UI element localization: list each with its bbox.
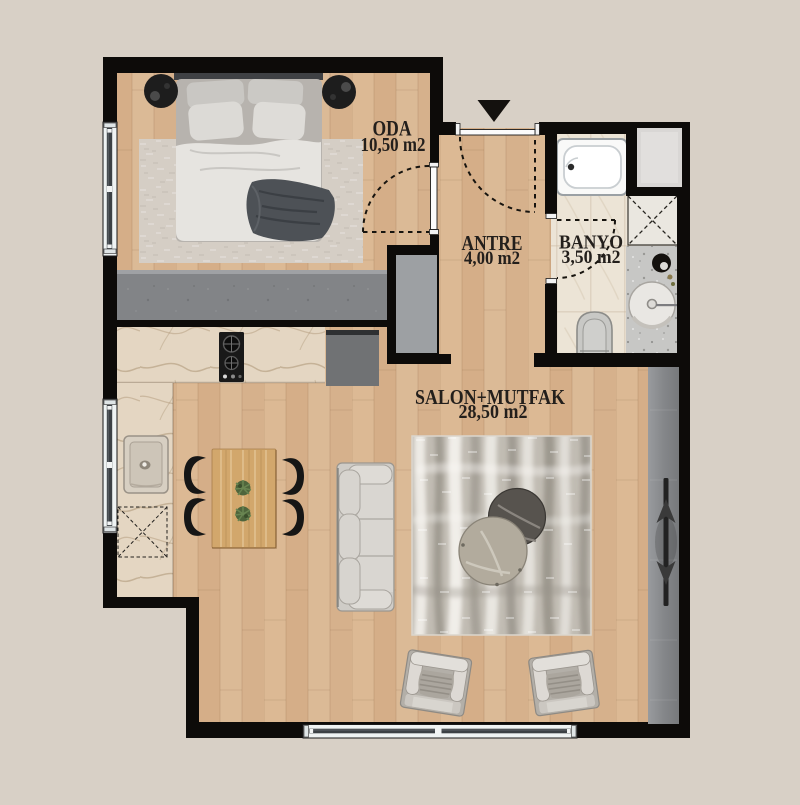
svg-text:28,50 m2: 28,50 m2 — [459, 401, 528, 423]
svg-text:3,50 m2: 3,50 m2 — [562, 247, 621, 268]
svg-text:4,00 m2: 4,00 m2 — [464, 248, 520, 269]
svg-text:10,50 m2: 10,50 m2 — [361, 134, 426, 156]
